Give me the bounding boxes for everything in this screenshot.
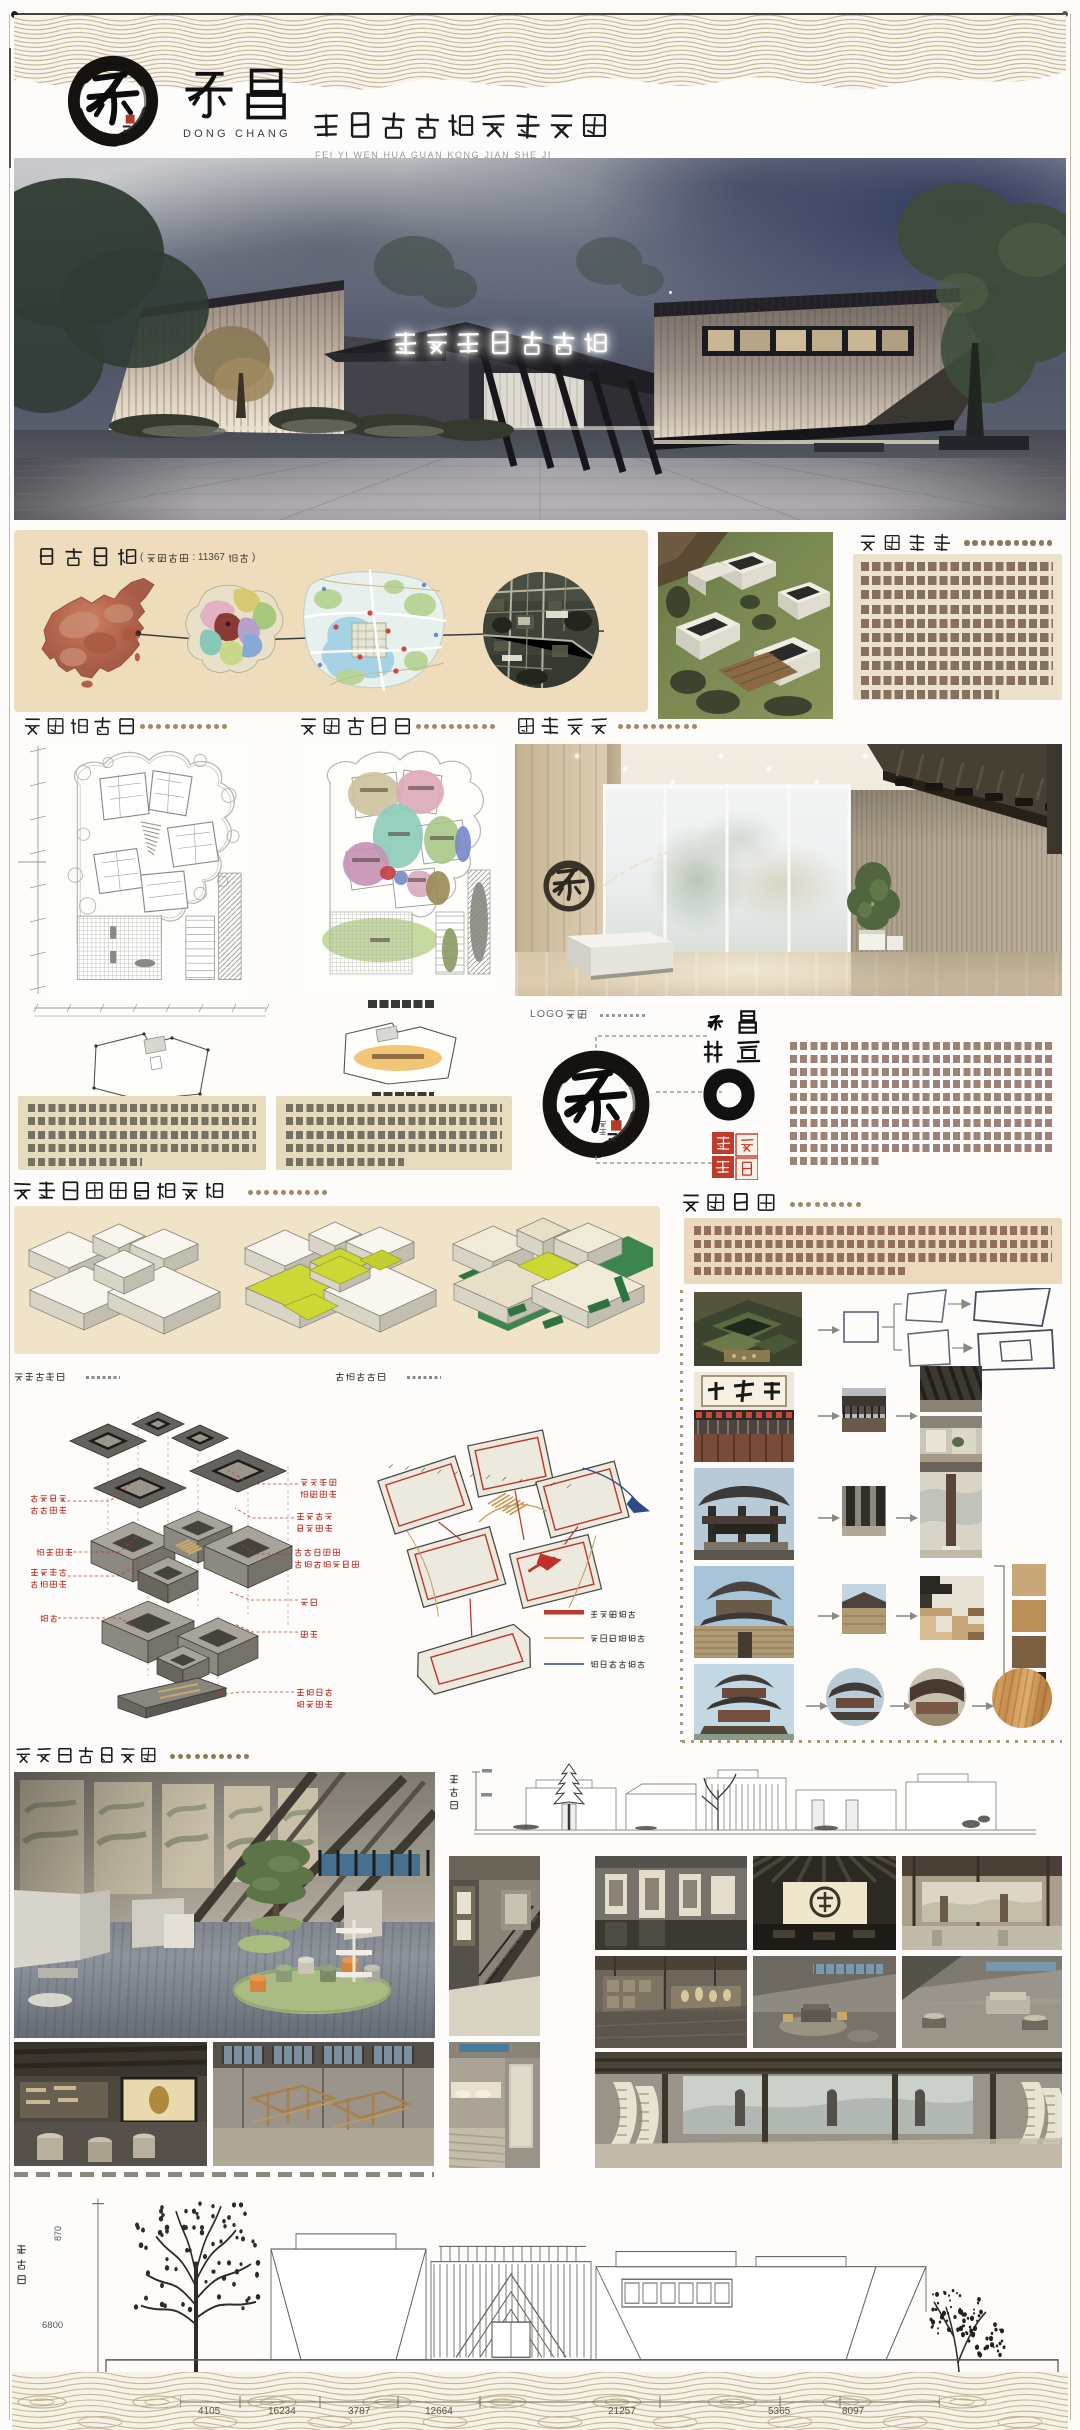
- svg-text:8097: 8097: [842, 2406, 865, 2417]
- svg-text:16234: 16234: [268, 2406, 296, 2417]
- svg-text:21257: 21257: [608, 2406, 636, 2417]
- svg-text:4105: 4105: [198, 2406, 221, 2417]
- svg-text:3787: 3787: [348, 2406, 371, 2417]
- svg-text:12664: 12664: [425, 2406, 453, 2417]
- svg-text:5365: 5365: [768, 2406, 791, 2417]
